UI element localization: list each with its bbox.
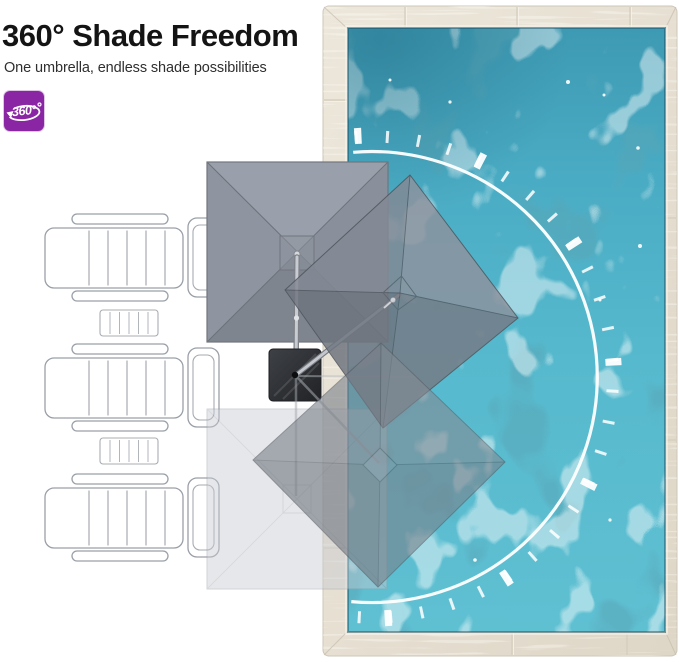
side-table	[100, 438, 158, 464]
product-infographic: 360° Shade Freedom One umbrella, endless…	[0, 0, 679, 662]
lounger	[45, 344, 219, 431]
lounger	[45, 474, 219, 561]
side-table	[100, 310, 158, 336]
rotation-badge: 360°	[4, 91, 44, 131]
base-hub-pivot	[292, 372, 298, 378]
lounger	[45, 214, 219, 301]
page-subtitle: One umbrella, endless shade possibilitie…	[4, 60, 332, 76]
scene-illustration	[0, 0, 679, 662]
loungers	[45, 214, 219, 561]
rotation-badge-label: 360°	[2, 89, 46, 133]
header: 360° Shade Freedom One umbrella, endless…	[2, 18, 332, 76]
page-title: 360° Shade Freedom	[2, 18, 332, 54]
